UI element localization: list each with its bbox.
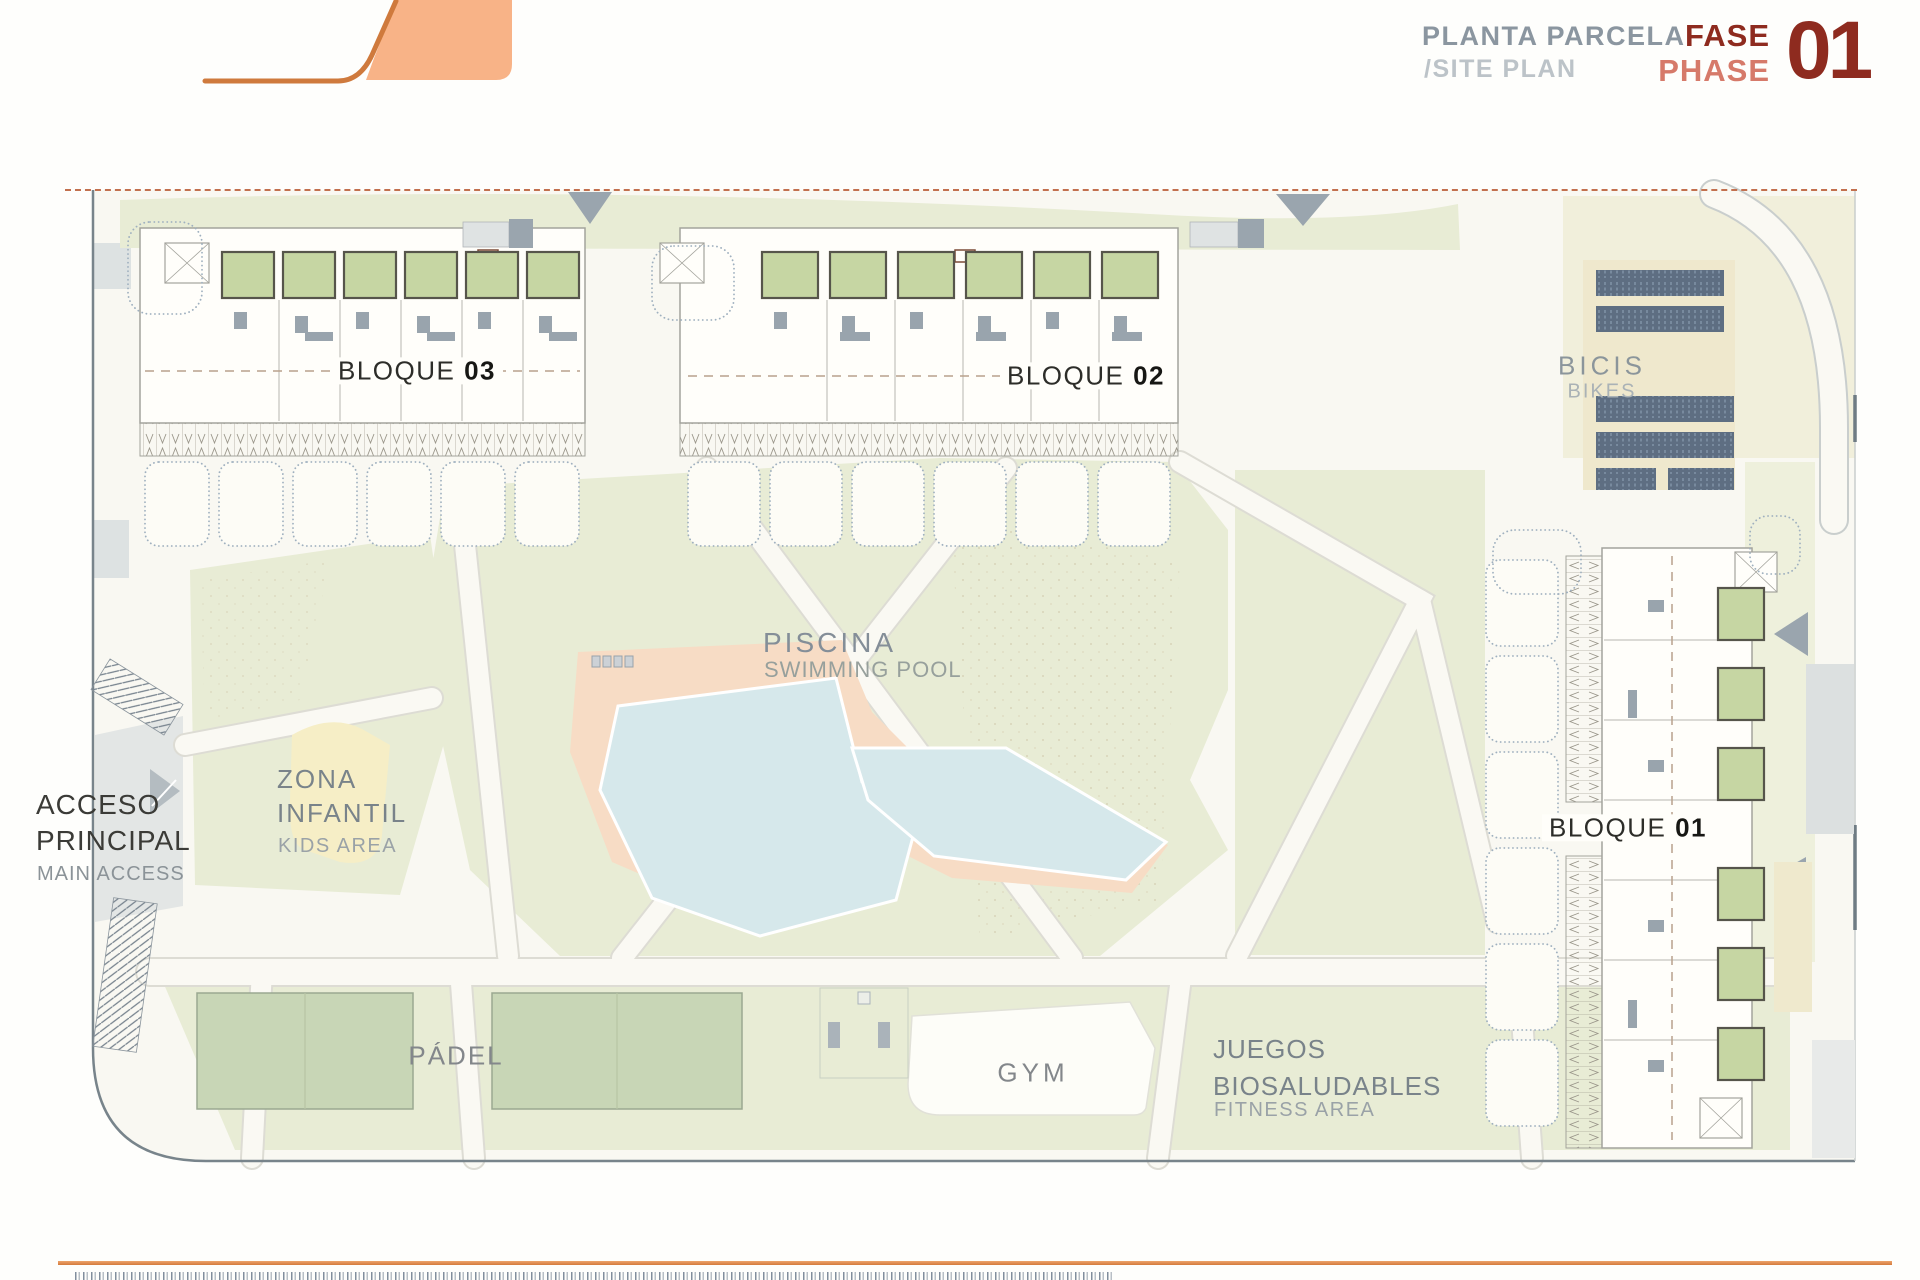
pool-label-en: SWIMMING POOL: [764, 658, 962, 681]
padel-label: PÁDEL: [408, 1042, 503, 1069]
block-02-number: 02: [1133, 360, 1165, 390]
cropped-disclaimer-text-strip: [75, 1272, 1115, 1280]
bench-strip: [1774, 862, 1812, 1012]
bike-rack: [1596, 270, 1724, 296]
access-label-line1: ACCESO: [36, 790, 160, 819]
phase-number: 01: [1786, 8, 1869, 94]
parking-strip: [1812, 1040, 1855, 1158]
page-subtitle: /SITE PLAN: [1424, 56, 1577, 82]
bike-rack: [1668, 468, 1734, 490]
parking-strip: [1806, 664, 1854, 834]
access-label-en: MAIN ACCESS: [37, 864, 185, 885]
pool-label-es: PISCINA: [763, 628, 896, 657]
fitness-label-line1: JUEGOS: [1213, 1036, 1326, 1063]
fitness-label-en: FITNESS AREA: [1214, 1100, 1375, 1121]
gym-label: GYM: [997, 1059, 1068, 1086]
phase-word-en: PHASE: [1658, 55, 1770, 88]
block-02-label: BLOQUE 02: [1000, 362, 1172, 389]
terrace-hatch-band: [1566, 856, 1602, 1148]
access-label-line2: PRINCIPAL: [36, 826, 191, 855]
bike-rack: [1596, 468, 1656, 490]
terrace-hatch-band: [680, 423, 1178, 456]
sidewalk-tab: [93, 243, 131, 289]
bike-rack: [1596, 306, 1724, 332]
block-03-number: 03: [464, 355, 496, 385]
bikes-label-es: BICIS: [1558, 352, 1646, 379]
block-01-number: 01: [1675, 812, 1707, 842]
kids-label-line2: INFANTIL: [277, 800, 407, 827]
sidewalk-tab: [93, 520, 129, 578]
site-plan-drawing: [0, 0, 1920, 1280]
block-01-label: BLOQUE 01: [1542, 814, 1714, 841]
bike-rack: [1596, 432, 1734, 458]
brand-logo: [0, 0, 560, 100]
elevator-core: [660, 243, 704, 283]
block-02-word: BLOQUE: [1007, 360, 1124, 390]
footer-accent-rule: [58, 1261, 1892, 1265]
terrace-hatch-band: [1566, 556, 1602, 802]
phase-word-es: FASE: [1685, 20, 1770, 53]
block-03-word: BLOQUE: [338, 355, 455, 385]
block-03-label: BLOQUE 03: [331, 357, 503, 384]
parcel-boundary-dashed-line: [65, 189, 1857, 191]
terrace-hatch-band: [140, 423, 585, 456]
fitness-label-line2: BIOSALUDABLES: [1213, 1073, 1441, 1100]
kids-label-en: KIDS AREA: [278, 836, 397, 857]
page-title: PLANTA PARCELA: [1422, 22, 1686, 50]
block-01-word: BLOQUE: [1549, 812, 1666, 842]
site-plan-page: PLANTA PARCELA /SITE PLAN FASE PHASE 01 …: [0, 0, 1920, 1280]
bikes-label-en: BIKES: [1568, 382, 1637, 403]
kids-label-line1: ZONA: [277, 766, 357, 793]
